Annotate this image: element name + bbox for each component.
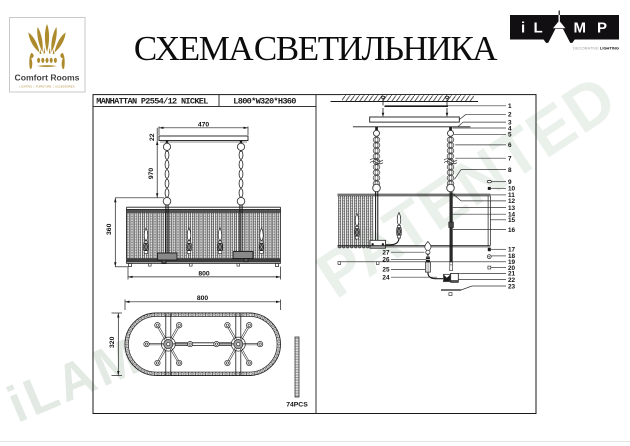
svg-text:Comfort Rooms: Comfort Rooms <box>15 73 80 83</box>
svg-text:970: 970 <box>148 168 155 180</box>
svg-text:7: 7 <box>508 156 512 163</box>
svg-text:1: 1 <box>508 103 512 110</box>
svg-text:470: 470 <box>198 121 210 128</box>
svg-text:6: 6 <box>508 142 512 149</box>
svg-text:2: 2 <box>508 112 512 119</box>
svg-text:27: 27 <box>382 250 390 257</box>
svg-text:74PCS: 74PCS <box>286 402 308 409</box>
svg-text:16: 16 <box>508 227 516 234</box>
svg-text:22: 22 <box>149 133 156 141</box>
svg-text:24: 24 <box>382 275 390 282</box>
svg-text:23: 23 <box>508 283 516 290</box>
svg-text:320: 320 <box>109 336 116 348</box>
svg-text:800: 800 <box>197 295 209 302</box>
svg-text:15: 15 <box>508 217 516 224</box>
svg-text:L800*W320*H360: L800*W320*H360 <box>233 97 296 107</box>
svg-text:25: 25 <box>382 267 390 274</box>
svg-text:MANHATTAN P2554/12 NICKEL: MANHATTAN P2554/12 NICKEL <box>96 97 208 107</box>
svg-text:26: 26 <box>382 257 390 264</box>
svg-text:800: 800 <box>198 270 210 277</box>
svg-text:5: 5 <box>508 132 512 139</box>
svg-text:360: 360 <box>106 223 113 235</box>
svg-text:8: 8 <box>508 167 512 174</box>
svg-text:LIGHTING | FURNITURE | ACC: LIGHTING | FURNITURE | ACCESSORIES <box>19 85 74 89</box>
